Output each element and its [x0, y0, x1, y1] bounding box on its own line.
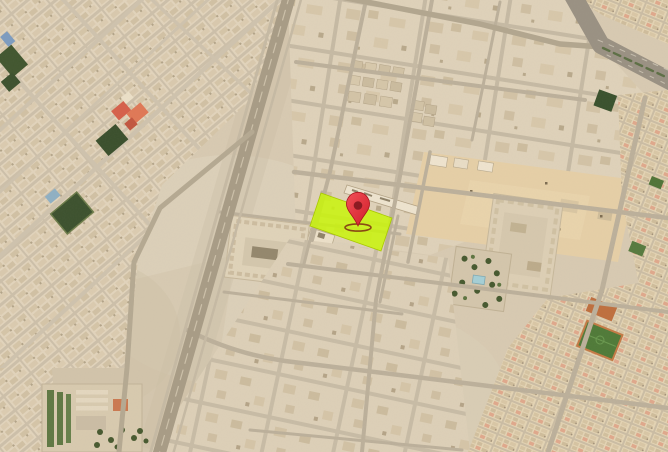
location-pin[interactable]	[345, 192, 371, 231]
pin-core	[354, 201, 363, 210]
map-canvas[interactable]	[0, 0, 668, 452]
